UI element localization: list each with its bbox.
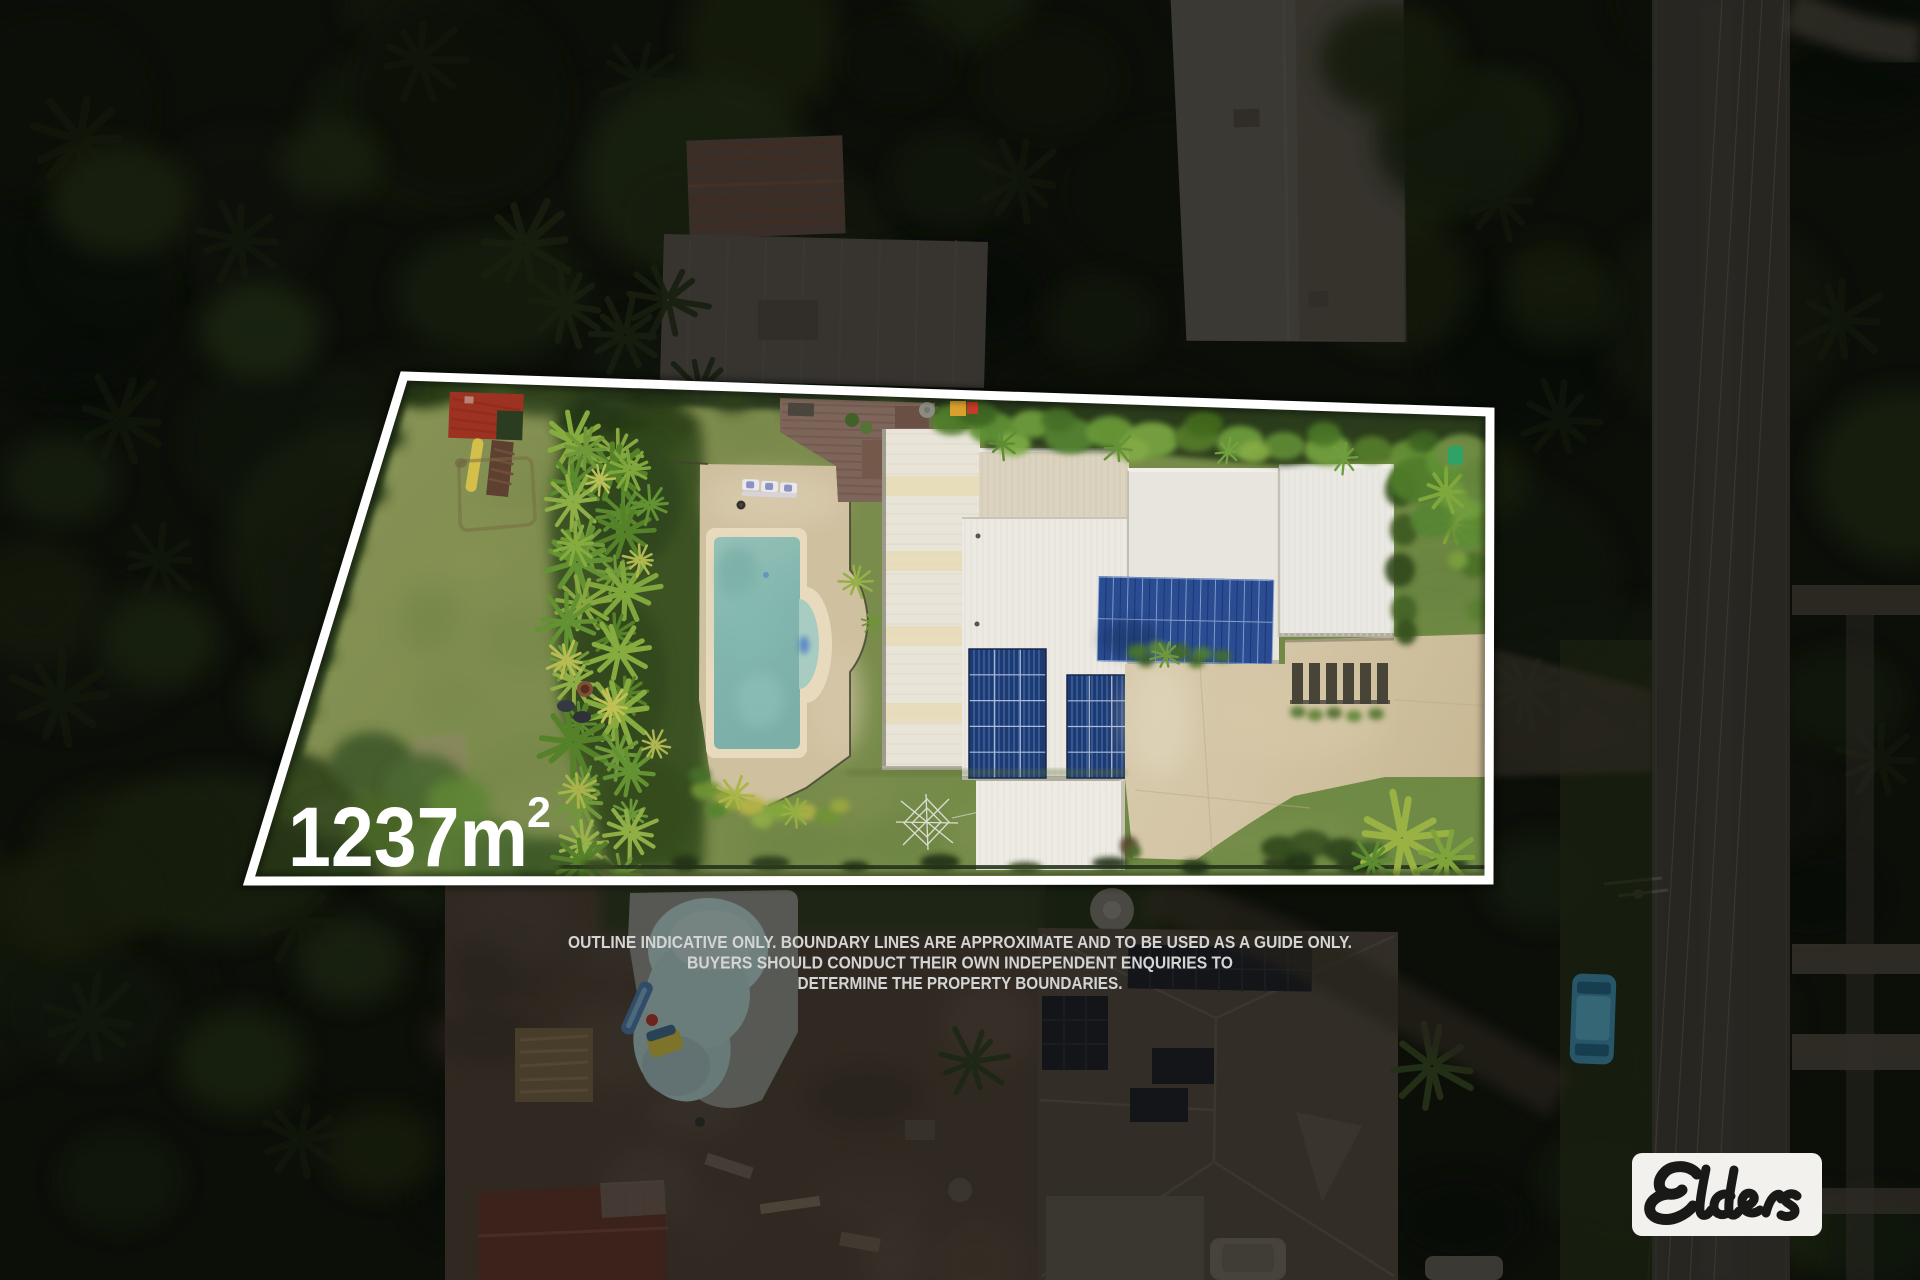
svg-text:OUTLINE INDICATIVE ONLY. BOUND: OUTLINE INDICATIVE ONLY. BOUNDARY LINES … <box>568 932 1352 952</box>
svg-text:1237m: 1237m <box>288 790 528 884</box>
svg-text:DETERMINE THE PROPERTY BOUNDAR: DETERMINE THE PROPERTY BOUNDARIES. <box>798 973 1123 993</box>
svg-text:BUYERS SHOULD CONDUCT THEIR OW: BUYERS SHOULD CONDUCT THEIR OWN INDEPEND… <box>687 953 1233 973</box>
svg-text:2: 2 <box>527 789 551 837</box>
